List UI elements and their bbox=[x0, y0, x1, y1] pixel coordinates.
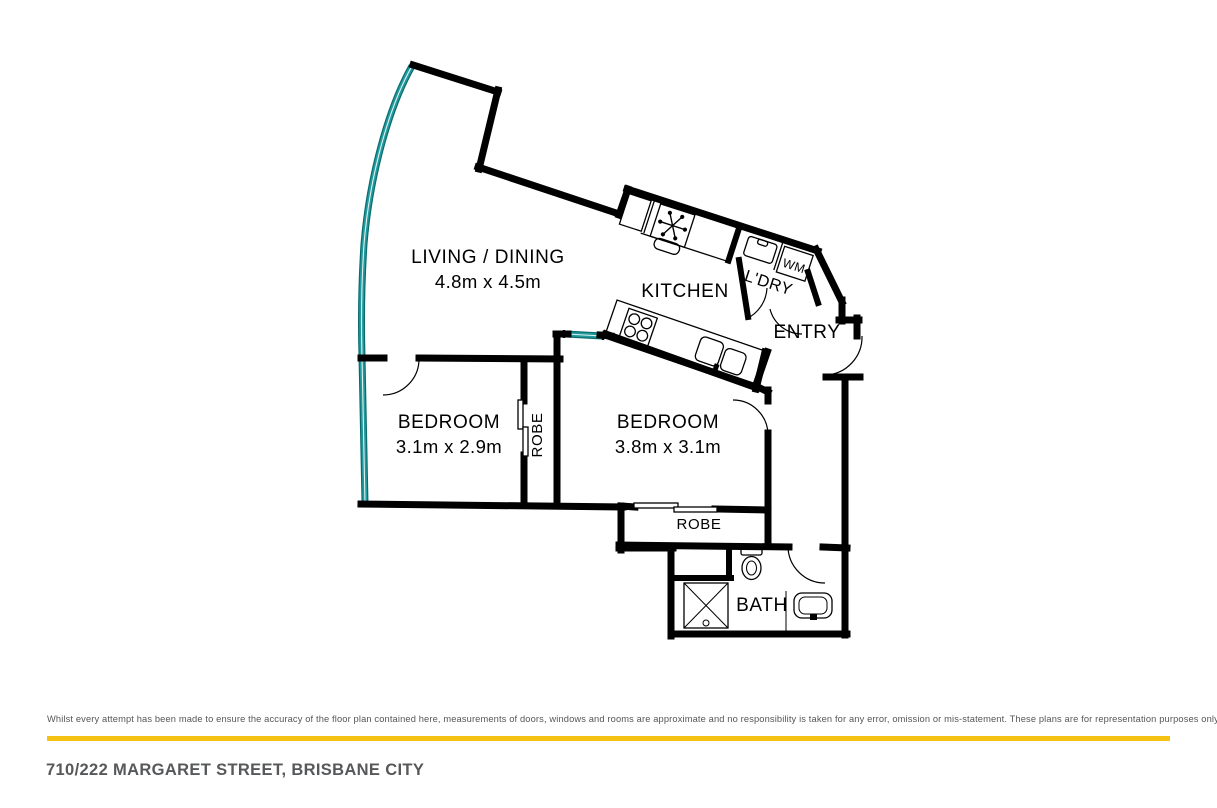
bedroom1-window bbox=[362, 357, 365, 503]
floorplan-page: WM L'DRY bbox=[0, 0, 1217, 808]
address-title: 710/222 MARGARET STREET, BRISBANE CITY bbox=[46, 761, 424, 780]
disclaimer-text: Whilst every attempt has been made to en… bbox=[47, 714, 1171, 724]
living-label: LIVING / DINING bbox=[411, 247, 565, 268]
bench-edge bbox=[641, 233, 727, 261]
bedroom1-door-arc bbox=[383, 359, 419, 395]
robe1-door-panel bbox=[523, 427, 528, 456]
laundry-label: L'DRY bbox=[742, 267, 795, 299]
bath-door-arc bbox=[788, 546, 825, 583]
bath-label: BATH bbox=[736, 595, 788, 616]
stove-fan-icon bbox=[655, 209, 690, 242]
curved-window bbox=[361, 66, 412, 357]
laundry-partition bbox=[728, 225, 739, 260]
robe1-door-panel bbox=[518, 400, 523, 429]
shower bbox=[684, 583, 728, 628]
toilet bbox=[741, 546, 762, 580]
robe1-label: ROBE bbox=[529, 413, 546, 458]
washing-machine-label: WM bbox=[781, 256, 807, 276]
floorplan-drawing: WM L'DRY bbox=[0, 0, 1217, 700]
vanity-basin bbox=[786, 591, 832, 633]
bedroom2-label: BEDROOM bbox=[617, 412, 719, 433]
robe2-door-panel bbox=[674, 507, 717, 512]
bedroom1-dims: 3.1m x 2.9m bbox=[396, 436, 502, 457]
bedroom1-label: BEDROOM bbox=[398, 412, 500, 433]
robe2-label: ROBE bbox=[677, 516, 722, 533]
laundry-tub bbox=[743, 236, 778, 264]
kitchen-label: KITCHEN bbox=[641, 281, 729, 302]
entry-label: ENTRY bbox=[773, 322, 840, 343]
bedroom2-dims: 3.8m x 3.1m bbox=[615, 436, 721, 457]
living-dims: 4.8m x 4.5m bbox=[435, 271, 541, 292]
accent-rule bbox=[47, 736, 1170, 741]
bedroom2-door-arc bbox=[733, 400, 768, 434]
robe2-door-panel bbox=[634, 503, 678, 508]
kitchen-counter-wall bbox=[605, 335, 756, 387]
